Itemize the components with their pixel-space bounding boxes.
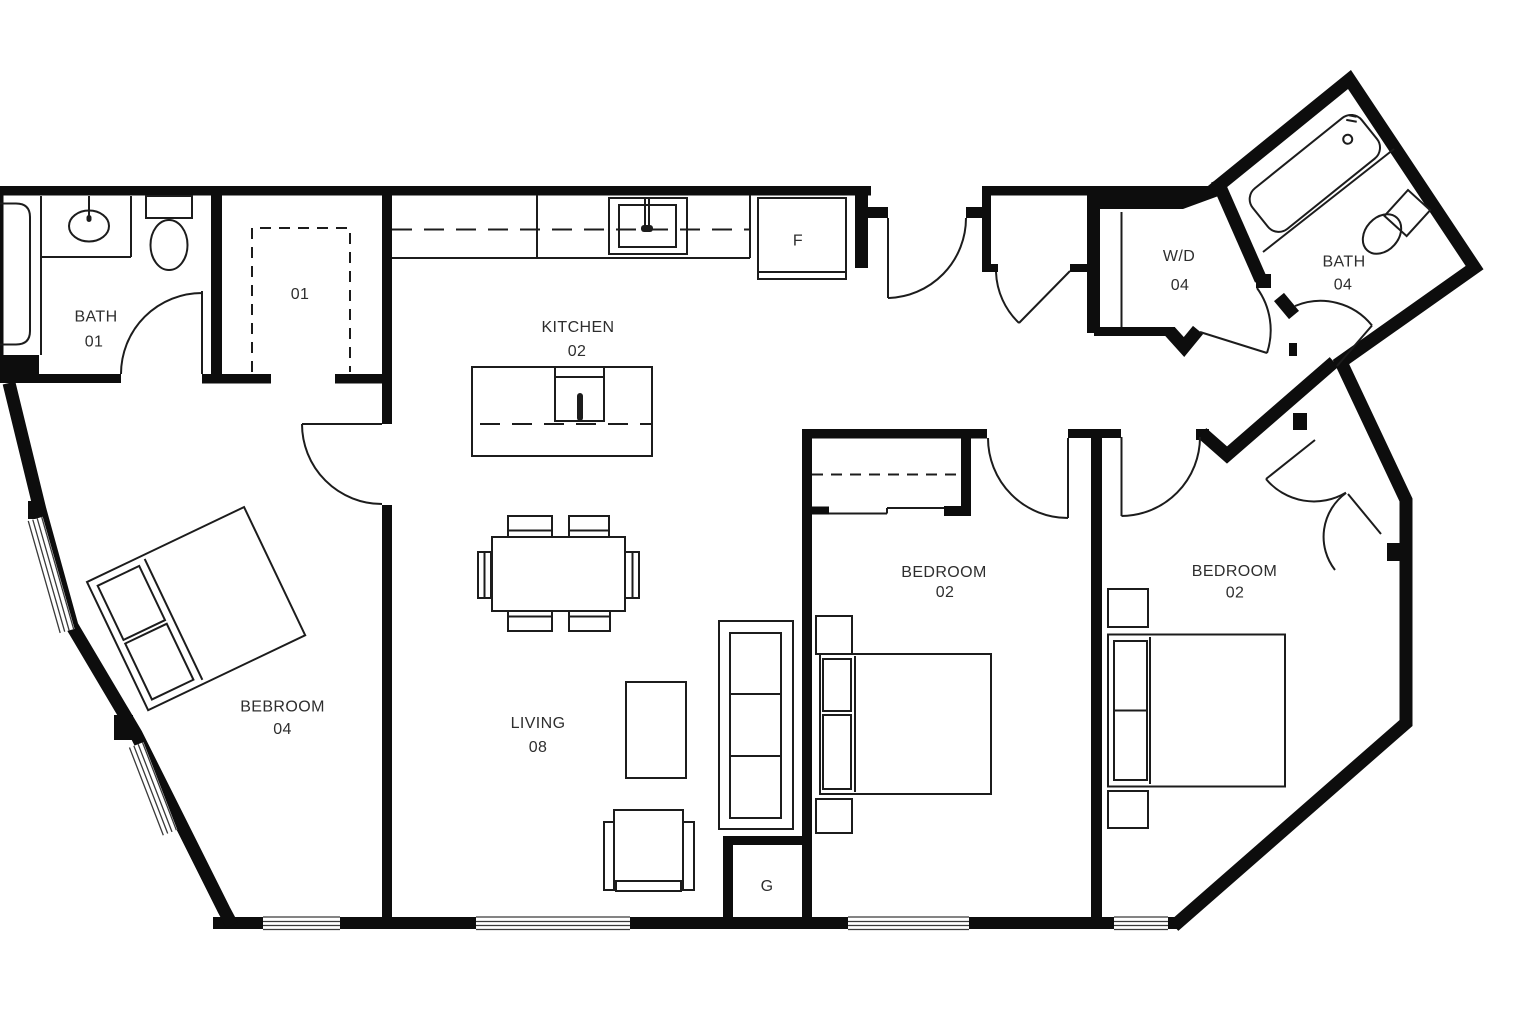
svg-text:BEDROOM: BEDROOM <box>901 564 986 581</box>
svg-text:02: 02 <box>568 343 587 360</box>
svg-text:G: G <box>761 878 774 895</box>
svg-text:BATH: BATH <box>1322 254 1365 271</box>
svg-text:02: 02 <box>1226 585 1245 602</box>
svg-text:F: F <box>793 233 803 250</box>
svg-text:BEBROOM: BEBROOM <box>240 699 325 716</box>
svg-text:04: 04 <box>1334 277 1353 294</box>
svg-text:02: 02 <box>936 584 955 601</box>
svg-text:04: 04 <box>273 721 292 738</box>
svg-text:BATH: BATH <box>74 309 117 326</box>
svg-text:01: 01 <box>291 286 310 303</box>
svg-text:04: 04 <box>1171 277 1190 294</box>
svg-text:W/D: W/D <box>1163 248 1195 265</box>
svg-text:BEDROOM: BEDROOM <box>1192 563 1277 580</box>
svg-text:KITCHEN: KITCHEN <box>541 319 614 336</box>
svg-text:01: 01 <box>85 334 104 351</box>
svg-text:LIVING: LIVING <box>511 715 566 732</box>
svg-text:08: 08 <box>529 739 548 756</box>
